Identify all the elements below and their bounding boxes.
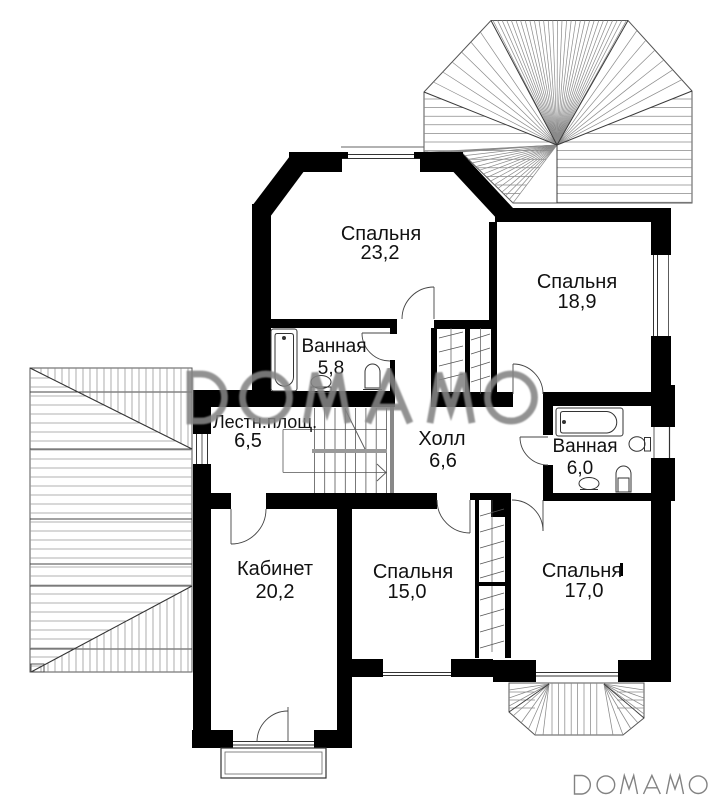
svg-text:20,2: 20,2 bbox=[256, 581, 295, 603]
svg-text:Ванная: Ванная bbox=[301, 336, 366, 357]
svg-text:6,0: 6,0 bbox=[567, 458, 593, 479]
svg-text:Ванная: Ванная bbox=[552, 436, 617, 457]
svg-text:6,5: 6,5 bbox=[234, 430, 262, 452]
svg-text:23,2: 23,2 bbox=[361, 242, 400, 264]
svg-text:6,6: 6,6 bbox=[429, 450, 457, 472]
svg-text:Кабинет: Кабинет bbox=[237, 558, 313, 580]
svg-text:Спальня: Спальня bbox=[537, 271, 617, 293]
svg-text:Спальня: Спальня bbox=[373, 561, 453, 583]
svg-text:Спальня: Спальня bbox=[542, 560, 622, 582]
svg-text:17,0: 17,0 bbox=[565, 580, 604, 602]
svg-text:18,9: 18,9 bbox=[558, 291, 597, 313]
svg-text:Холл: Холл bbox=[418, 428, 465, 450]
svg-text:15,0: 15,0 bbox=[388, 581, 427, 603]
